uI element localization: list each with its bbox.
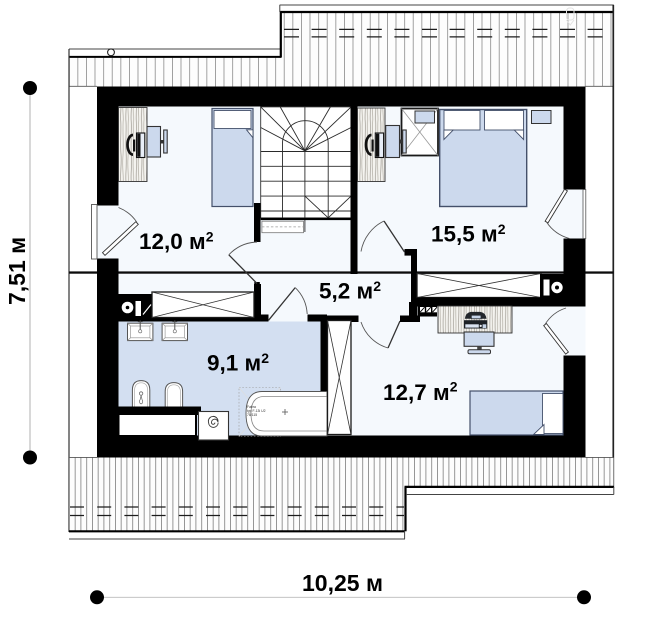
svg-text:12,0 м2: 12,0 м2: [139, 229, 214, 255]
svg-text:9,1 м2: 9,1 м2: [207, 350, 269, 376]
svg-text:78/115: 78/115: [247, 413, 257, 417]
svg-text:7,51 м: 7,51 м: [4, 237, 30, 305]
svg-text:12,7 м2: 12,7 м2: [383, 379, 458, 406]
svg-text:5,2 м2: 5,2 м2: [319, 278, 381, 304]
svg-text:15,5 м2: 15,5 м2: [431, 221, 506, 247]
svg-text:10,25 м: 10,25 м: [302, 570, 383, 596]
